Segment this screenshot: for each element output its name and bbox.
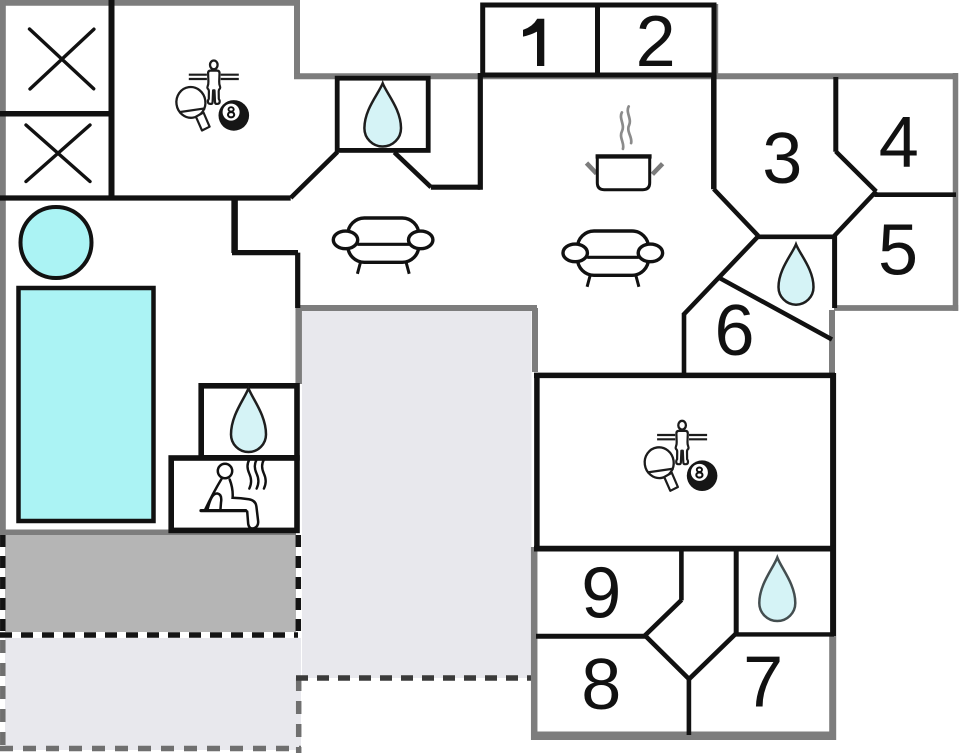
svg-text:3: 3 — [762, 119, 802, 199]
svg-text:6: 6 — [714, 291, 754, 371]
svg-text:8: 8 — [581, 645, 621, 725]
svg-text:9: 9 — [581, 554, 621, 634]
svg-text:4: 4 — [879, 103, 919, 183]
svg-text:5: 5 — [878, 211, 918, 291]
svg-text:7: 7 — [743, 643, 783, 723]
svg-text:2: 2 — [636, 2, 676, 82]
